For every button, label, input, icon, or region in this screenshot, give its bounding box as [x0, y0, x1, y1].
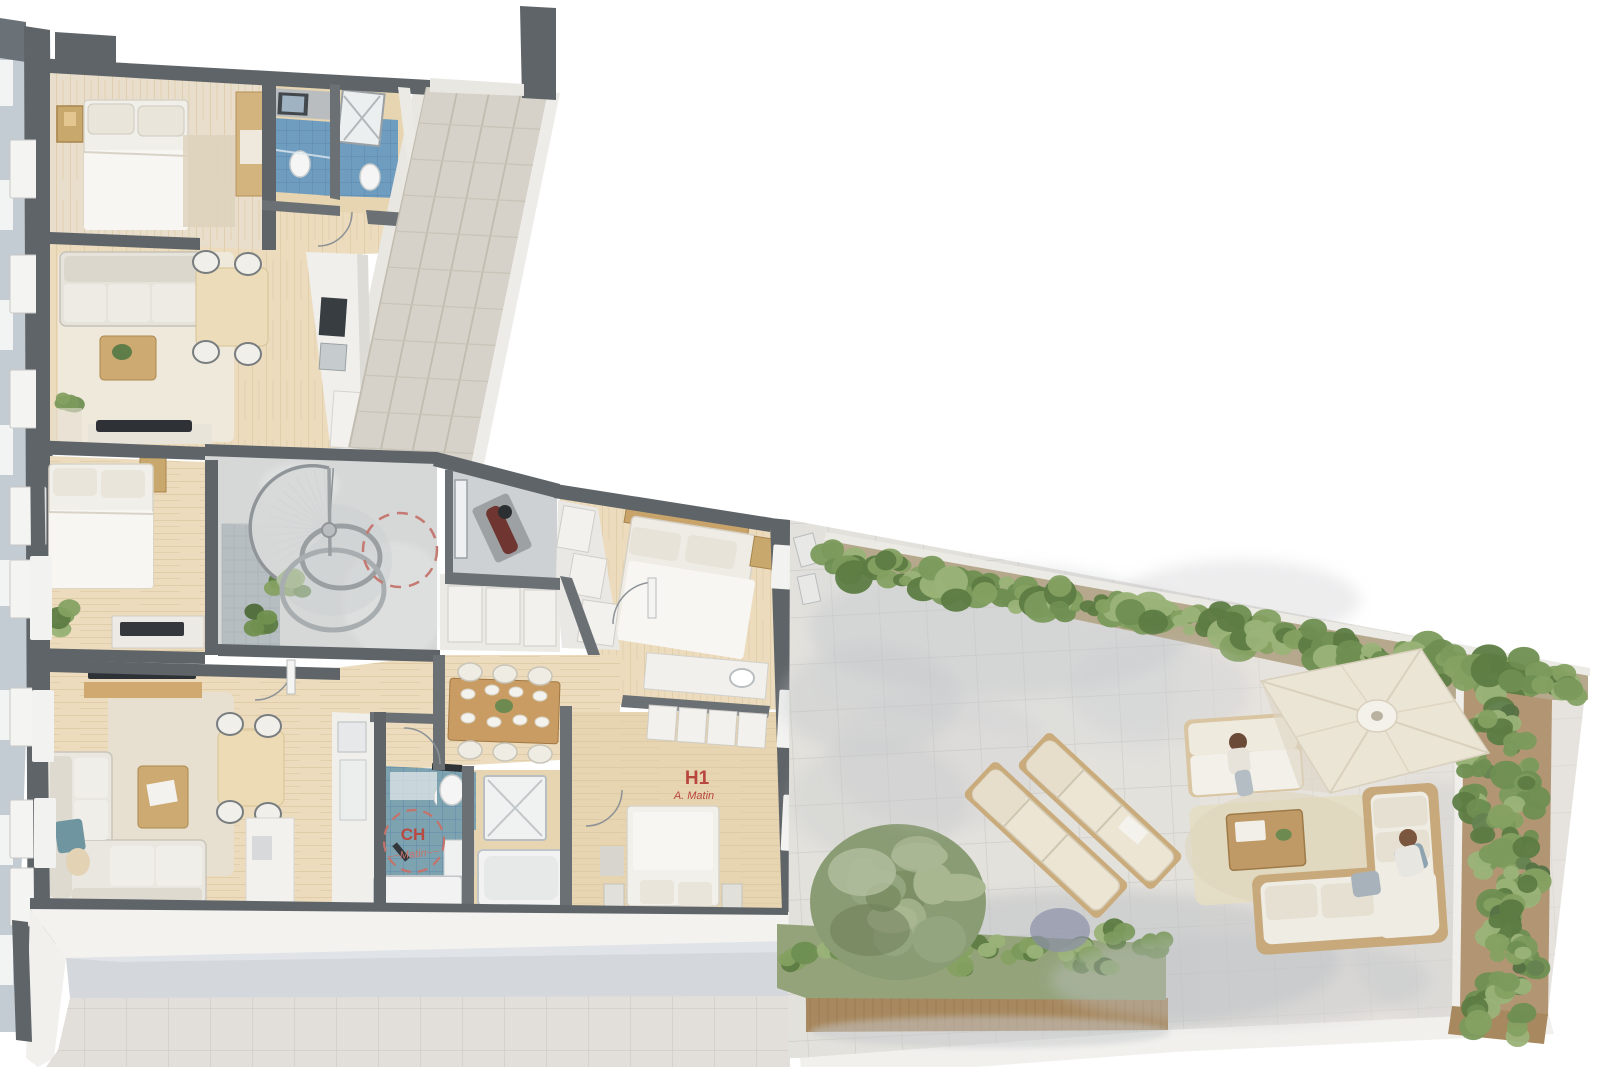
svg-text:CH: CH	[401, 825, 426, 844]
svg-text:H1: H1	[685, 768, 710, 789]
svg-text:A. Matin: A. Matin	[673, 790, 714, 802]
